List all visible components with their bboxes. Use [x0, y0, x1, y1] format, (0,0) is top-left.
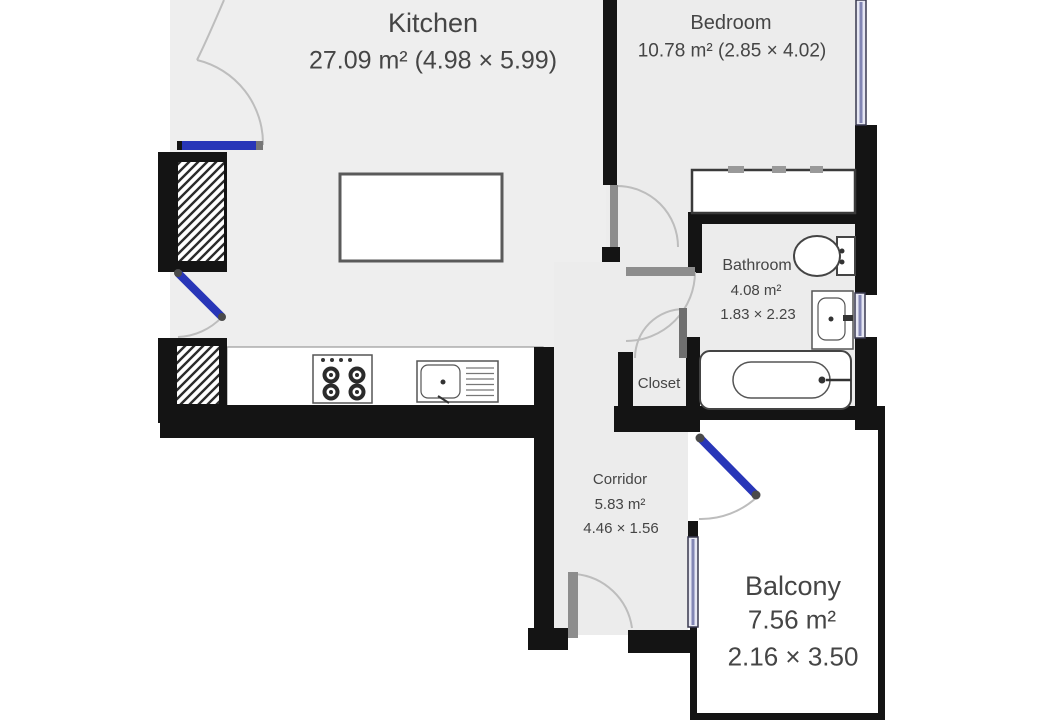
kitchen-dimensions: 27.09 m² (4.98 × 5.99) [309, 47, 557, 75]
balcony-floor [690, 420, 884, 720]
bedroom-window [856, 0, 866, 125]
shaft-upper-hatch [178, 162, 224, 261]
wardrobe [692, 166, 855, 213]
bedroom-label: Bedroom [690, 12, 771, 34]
bedroom-dimensions: 10.78 m² (2.85 × 4.02) [638, 42, 827, 63]
stove-burner [323, 384, 340, 401]
floor-plan-canvas [0, 0, 1037, 720]
kitchen-bedroom-wall [603, 0, 617, 185]
balcony-left-wall [690, 627, 697, 720]
wardrobe-body [692, 170, 855, 213]
kitchen-sink [417, 361, 498, 403]
corridor-bottom-wall [628, 630, 697, 653]
door-leaf-blue [177, 141, 263, 150]
stove-burner [349, 367, 366, 384]
door-hinge [218, 313, 226, 321]
door-leaf [679, 308, 687, 358]
wardrobe-handle [728, 166, 744, 173]
bathroom-left-wall [688, 223, 702, 273]
bathroom-label: Bathroom [722, 257, 791, 275]
balcony-left-stub-wall [688, 521, 698, 537]
bathtub-drain [819, 377, 826, 384]
door-end-cap [177, 141, 182, 150]
washbasin-faucet [843, 315, 853, 321]
door-leaf [610, 185, 618, 247]
shaft-lower-hatch [177, 346, 219, 404]
closet-right-wall [686, 337, 700, 408]
stove-knob [321, 358, 325, 362]
corridor-label: Corridor [593, 472, 647, 489]
closet-left-wall [618, 352, 633, 410]
toilet-hinge [840, 260, 845, 265]
stove-burner [349, 384, 366, 401]
balcony-bottom-wall [690, 713, 885, 720]
kitchen-label: Kitchen [388, 9, 478, 39]
door-hinge [752, 491, 761, 500]
right-wall-upper [855, 125, 877, 295]
door-leaf [626, 267, 695, 276]
corridor-area: 5.83 m² [595, 497, 646, 514]
wardrobe-handle [810, 166, 823, 173]
washbasin [812, 291, 853, 349]
toilet-bowl [794, 236, 840, 276]
wardrobe-handle [772, 166, 786, 173]
kitchen-bottom-wall [160, 405, 545, 438]
stove-knob [330, 358, 334, 362]
balcony-right-wall [878, 423, 885, 720]
stove-knob [348, 358, 352, 362]
closet-bottom-wall [614, 406, 700, 432]
door-end-cap [256, 141, 263, 150]
sink-faucet [441, 380, 446, 385]
corridor-dimensions: 4.46 × 1.56 [583, 521, 658, 538]
bathroom-area: 4.08 m² [731, 283, 782, 300]
door-hinge [696, 434, 705, 443]
washbasin-drain [829, 317, 834, 322]
corridor-window [688, 537, 698, 627]
bathtub [700, 351, 851, 409]
kitchen-bedroom-wall-stub [602, 247, 620, 262]
toilet [794, 236, 855, 276]
door-hinge [174, 269, 182, 277]
corridor-left-wall [534, 347, 554, 632]
balcony-label: Balcony [745, 572, 841, 602]
bathroom-dimensions: 1.83 × 2.23 [720, 307, 795, 324]
balcony-area: 7.56 m² [748, 606, 836, 635]
kitchen-island [340, 174, 502, 261]
bathtub-basin [733, 362, 830, 398]
bathroom-window [855, 293, 865, 338]
stove-knob [339, 358, 343, 362]
closet-label: Closet [638, 376, 681, 393]
toilet-hinge [840, 249, 845, 254]
stove-burner [323, 367, 340, 384]
floor-plan: Kitchen 27.09 m² (4.98 × 5.99) Bedroom 1… [0, 0, 1037, 720]
sink-basin [421, 365, 460, 398]
door-leaf [568, 572, 578, 638]
balcony-dimensions: 2.16 × 3.50 [728, 643, 859, 672]
entry-corner-wall [528, 628, 568, 650]
stove [313, 355, 372, 403]
